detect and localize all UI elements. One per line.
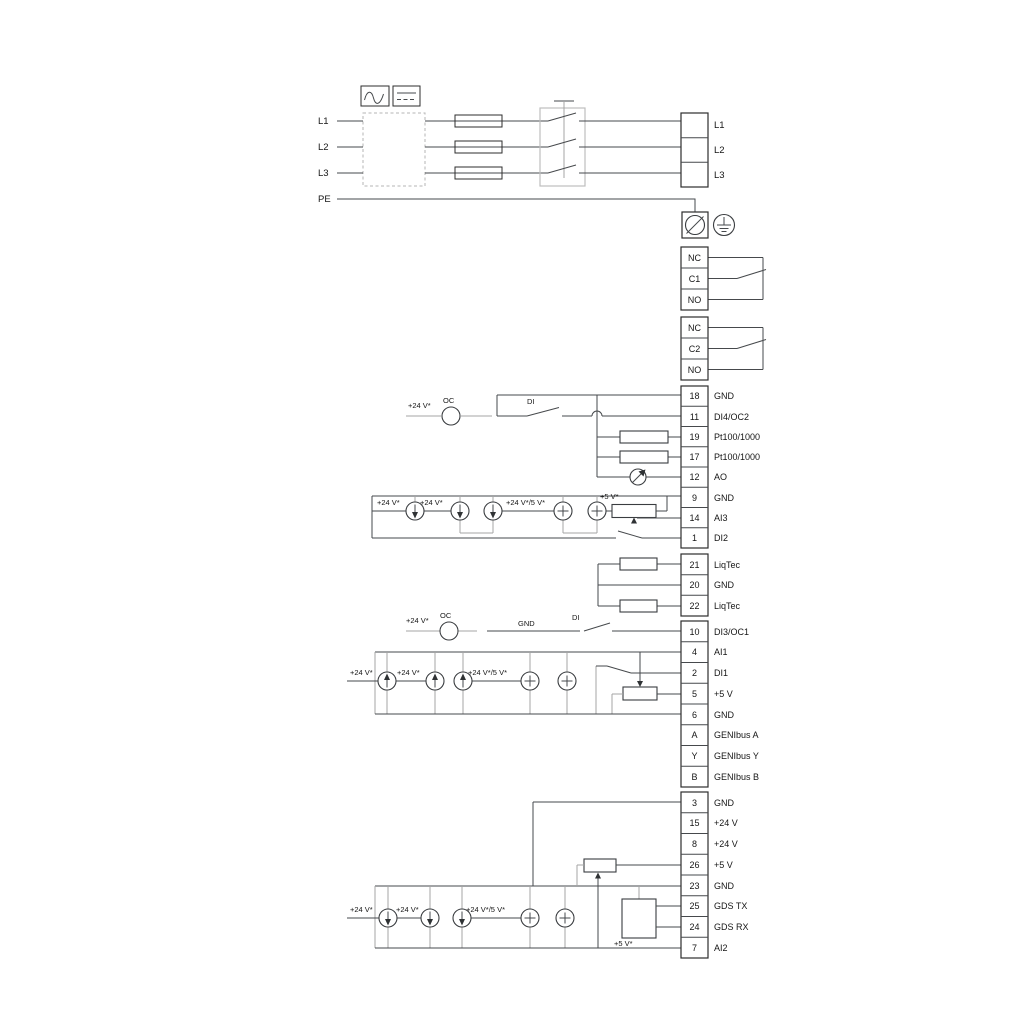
group1-wiring: +24 V* OC DI +24 V* +24 V* +24 V*/5 V* +… bbox=[372, 395, 681, 538]
label-ai1-24v-b: +24 V* bbox=[397, 668, 420, 677]
di1-switch bbox=[596, 666, 681, 673]
current-source-icon-ai1-2 bbox=[426, 672, 444, 690]
terminal-label: AI1 bbox=[714, 647, 728, 657]
label-input-l2: L2 bbox=[318, 142, 329, 153]
relay2-nc: NC bbox=[688, 323, 701, 333]
terminal-label: AI3 bbox=[714, 513, 728, 523]
gnd3-wire bbox=[533, 802, 681, 886]
wiring-diagram-page: L1 L2 L3 PE L1 L2 L3 NC C1 NO NC C2 NO bbox=[0, 0, 1024, 1024]
label-row11-24v: +24 V* bbox=[408, 401, 431, 410]
voltage-source-icon-ai1-2 bbox=[558, 672, 576, 690]
terminal-label: GND bbox=[714, 580, 735, 590]
terminal-label: +5 V bbox=[714, 689, 733, 699]
label-ai3-24v-a: +24 V* bbox=[377, 498, 400, 507]
terminal-num: 23 bbox=[689, 881, 699, 891]
terminal-label: GENIbus Y bbox=[714, 751, 759, 761]
terminal-label: GDS TX bbox=[714, 901, 747, 911]
label-ai2-5v: +5 V* bbox=[614, 939, 633, 948]
terminal-num: 6 bbox=[692, 710, 697, 720]
label-output-l3: L3 bbox=[714, 170, 725, 181]
terminal-num: 19 bbox=[689, 432, 699, 442]
label-ai3-24v-b: +24 V* bbox=[420, 498, 443, 507]
label-row11-di: DI bbox=[527, 397, 535, 406]
liqtec-wiring bbox=[598, 558, 681, 612]
group4-wiring: +24 V* +24 V* +24 V*/5 V* +5 V* bbox=[347, 802, 681, 948]
terminal-label: GENIbus B bbox=[714, 772, 759, 782]
label-row10-24v: +24 V* bbox=[406, 616, 429, 625]
ai1-wiper-arrow bbox=[637, 681, 643, 687]
power-output-wires bbox=[579, 121, 681, 173]
voltage-source-icon-ai1-1 bbox=[521, 672, 539, 690]
terminal-num: 5 bbox=[692, 689, 697, 699]
terminal-label: Pt100/1000 bbox=[714, 452, 760, 462]
terminal-block-1: 18 11 19 17 12 9 14 1 GND DI4/OC2 Pt100/… bbox=[681, 386, 760, 548]
voltage-source-icon-ai3-2 bbox=[588, 502, 606, 520]
label-row11-oc: OC bbox=[443, 396, 455, 405]
label-input-l3: L3 bbox=[318, 168, 329, 179]
terminal-label: GND bbox=[714, 710, 735, 720]
terminal-label: +24 V bbox=[714, 839, 738, 849]
terminal-num: 14 bbox=[689, 513, 699, 523]
current-source-icon-ai1-1 bbox=[378, 672, 396, 690]
ai3-potentiometer bbox=[612, 505, 656, 518]
terminal-num: 18 bbox=[689, 391, 699, 401]
terminal-label: AI2 bbox=[714, 943, 728, 953]
terminal-label: AO bbox=[714, 472, 727, 482]
voltage-source-icon-ai2-2 bbox=[556, 909, 574, 927]
terminal-label: GDS RX bbox=[714, 922, 749, 932]
terminal-label: DI3/OC1 bbox=[714, 627, 749, 637]
label-output-l1: L1 bbox=[714, 120, 725, 131]
relay2-c2: C2 bbox=[689, 344, 701, 354]
current-source-icon-ai3-3 bbox=[484, 502, 502, 520]
protective-earth-icon bbox=[714, 215, 735, 236]
relay-contact-1: NC C1 NO bbox=[681, 247, 766, 310]
power-section: L1 L2 L3 PE L1 L2 L3 bbox=[318, 86, 735, 238]
power-terminal-block bbox=[681, 113, 708, 187]
terminal-label: GND bbox=[714, 881, 735, 891]
terminal-num: 17 bbox=[689, 452, 699, 462]
terminal-num: 26 bbox=[689, 860, 699, 870]
ai2-potentiometer bbox=[584, 859, 616, 872]
relay-contact-2: NC C2 NO bbox=[681, 317, 766, 380]
di2-switch bbox=[372, 531, 681, 538]
label-ai3-24v5v: +24 V*/5 V* bbox=[506, 498, 545, 507]
terminal-num: 3 bbox=[692, 798, 697, 808]
pe-screw-terminal-icon bbox=[682, 212, 708, 238]
label-ai1-24v-a: +24 V* bbox=[350, 668, 373, 677]
terminal-num: 10 bbox=[689, 627, 699, 637]
terminal-block-4: 3 15 8 26 23 25 24 7 GND +24 V +24 V +5 … bbox=[681, 792, 749, 958]
terminal-num: 9 bbox=[692, 493, 697, 503]
terminal-num: 2 bbox=[692, 668, 697, 678]
terminal-num: 20 bbox=[689, 580, 699, 590]
current-source-icon-ai2-2 bbox=[421, 909, 439, 927]
label-ai2-24v-b: +24 V* bbox=[396, 905, 419, 914]
label-ai2-24v-a: +24 V* bbox=[350, 905, 373, 914]
label-input-pe: PE bbox=[318, 194, 331, 205]
relay2-no: NO bbox=[688, 365, 702, 375]
di3-switch bbox=[487, 623, 681, 631]
ac-waveform-icon bbox=[361, 86, 389, 106]
ai1-potentiometer bbox=[623, 687, 657, 700]
label-ai1-24v5v: +24 V*/5 V* bbox=[468, 668, 507, 677]
terminal-label: Pt100/1000 bbox=[714, 432, 760, 442]
analog-output-meter-icon bbox=[630, 469, 646, 485]
dashed-option-box bbox=[363, 113, 425, 186]
label-output-l2: L2 bbox=[714, 145, 725, 156]
terminal-label: +24 V bbox=[714, 818, 738, 828]
terminal-label: GND bbox=[714, 391, 735, 401]
terminal-num: 7 bbox=[692, 943, 697, 953]
pt100-resistor-17 bbox=[620, 451, 668, 463]
terminal-label: +5 V bbox=[714, 860, 733, 870]
di4-switch bbox=[497, 408, 681, 417]
terminal-num: 22 bbox=[689, 601, 699, 611]
voltage-source-icon-ai3-1 bbox=[554, 502, 572, 520]
label-input-l1: L1 bbox=[318, 116, 329, 127]
terminal-num: 21 bbox=[689, 560, 699, 570]
open-collector-icon-row10 bbox=[440, 622, 458, 640]
current-source-icon-ai3-2 bbox=[451, 502, 469, 520]
pt100-resistor-19 bbox=[620, 431, 668, 443]
voltage-source-icon-ai2-1 bbox=[521, 909, 539, 927]
terminal-num: 12 bbox=[689, 472, 699, 482]
label-row10-gnd: GND bbox=[518, 619, 535, 628]
label-ai3-5v: +5 V* bbox=[600, 492, 619, 501]
wiring-diagram: L1 L2 L3 PE L1 L2 L3 NC C1 NO NC C2 NO bbox=[0, 0, 1024, 1024]
terminal-label: LiqTec bbox=[714, 601, 741, 611]
terminal-block-2: 21 20 22 LiqTec GND LiqTec bbox=[681, 554, 741, 616]
terminal-num: B bbox=[691, 772, 697, 782]
ai3-wiper-arrow bbox=[631, 518, 637, 524]
terminal-block-3: 10 4 2 5 6 A Y B DI3/OC1 AI1 DI1 +5 V GN… bbox=[681, 621, 759, 787]
terminal-num: 11 bbox=[690, 412, 699, 422]
label-ai2-24v5v: +24 V*/5 V* bbox=[466, 905, 505, 914]
terminal-label: GND bbox=[714, 798, 735, 808]
pe-wire bbox=[337, 199, 695, 212]
fused-wires bbox=[425, 121, 548, 173]
terminal-label: GENIbus A bbox=[714, 730, 759, 740]
current-source-icon-ai2-1 bbox=[379, 909, 397, 927]
open-collector-icon-row11 bbox=[442, 407, 460, 425]
liqtec-resistor-22 bbox=[620, 600, 657, 612]
terminal-label: DI2 bbox=[714, 533, 728, 543]
terminal-num: 1 bbox=[692, 533, 697, 543]
terminal-num: 24 bbox=[689, 922, 699, 932]
terminal-num: A bbox=[691, 730, 697, 740]
terminal-num: 25 bbox=[689, 901, 699, 911]
terminal-label: LiqTec bbox=[714, 560, 741, 570]
terminal-num: 4 bbox=[692, 647, 697, 657]
group3-wiring: +24 V* OC GND DI +24 V* +24 V* +24 V*/5 … bbox=[347, 611, 681, 714]
liqtec-resistor-21 bbox=[620, 558, 657, 570]
power-input-wires bbox=[337, 121, 363, 173]
terminal-label: GND bbox=[714, 493, 735, 503]
dc-line-icon bbox=[393, 86, 420, 106]
terminal-num: Y bbox=[691, 751, 697, 761]
relay1-c1: C1 bbox=[689, 274, 701, 284]
terminal-label: DI4/OC2 bbox=[714, 412, 749, 422]
relay1-nc: NC bbox=[688, 253, 701, 263]
gds-sensor-box bbox=[622, 899, 656, 938]
terminal-num: 8 bbox=[692, 839, 697, 849]
ai2-wiper-arrow bbox=[595, 873, 601, 879]
terminal-label: DI1 bbox=[714, 668, 728, 678]
label-row10-oc: OC bbox=[440, 611, 452, 620]
terminal-num: 15 bbox=[689, 818, 699, 828]
label-row10-di: DI bbox=[572, 613, 580, 622]
relay1-no: NO bbox=[688, 295, 702, 305]
